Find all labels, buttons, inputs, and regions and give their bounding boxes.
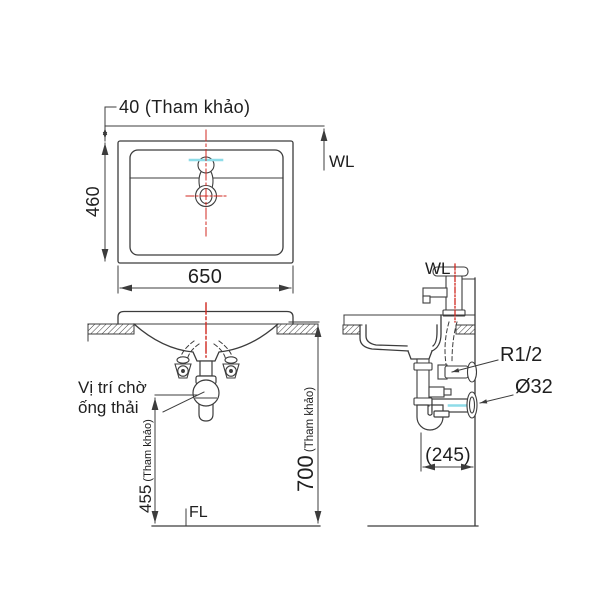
- front-fl-label: FL: [189, 504, 208, 521]
- technical-drawing-page: 40 (Tham khảo) WL 460 650 Vị trí chờ ống…: [0, 0, 600, 600]
- side-wl-label: WL: [425, 259, 451, 278]
- side-counter-hatch-right: [456, 325, 475, 334]
- plan-dim-650-label: 650: [188, 266, 222, 288]
- plan-wl-label: WL: [329, 152, 355, 171]
- front-note-line1: Vị trí chờ: [78, 378, 147, 397]
- front-counter-hatch-left: [88, 324, 134, 334]
- front-counter-hatch-right: [277, 324, 318, 334]
- side-drain-label: Ø32: [515, 376, 553, 398]
- front-note-line2: ống thải: [78, 398, 139, 417]
- plan-dim-460-label: 460: [83, 186, 103, 217]
- side-drain-flange: [467, 392, 477, 418]
- side-dim-245-label: (245): [425, 445, 471, 466]
- sink-installation-drawing: 40 (Tham khảo) WL 460 650 Vị trí chờ ống…: [0, 0, 600, 600]
- plan-dim-40-label: 40 (Tham khảo): [119, 97, 250, 117]
- side-supply-label: R1/2: [500, 344, 542, 366]
- background: [0, 0, 600, 600]
- side-counter-hatch-left: [343, 325, 360, 334]
